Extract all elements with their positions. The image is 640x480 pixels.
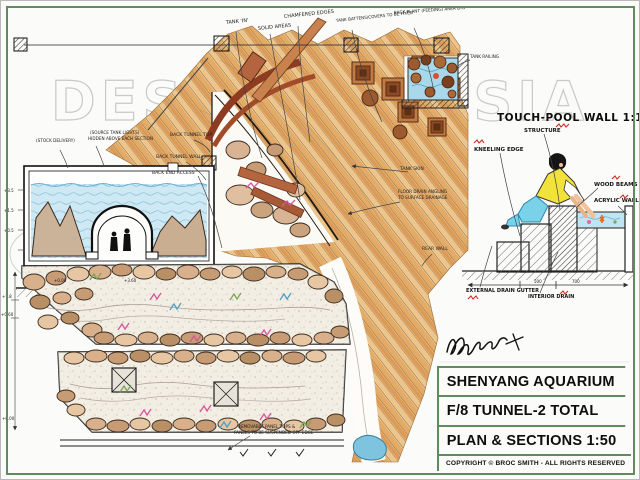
dim-p1: +1.8 [2, 294, 12, 299]
label-tank-railing: TANK RAILING [469, 54, 499, 59]
label-tank-lights-1: (SOURCE TANK LIGHTS) [90, 130, 140, 135]
touch-pool-plan [402, 54, 468, 108]
project-title: SHENYANG AQUARIUM [439, 366, 625, 395]
label-kneeling-edge: KNEELING EDGE [474, 147, 524, 153]
touch-pool-title: TOUCH-POOL WALL 1:10 [497, 112, 640, 124]
label-wood-beams: WOOD BEAMS [594, 182, 638, 188]
starfish-mark [433, 73, 439, 79]
dim-700: 700 [572, 279, 580, 284]
label-back-tunnel-top: BACK TUNNEL TOP [170, 132, 212, 138]
aquarium-drawing-sheet: { "page": { "watermark": "DESIGNED ASIA"… [0, 0, 640, 480]
copyright-line: COPYRIGHT © BROC SMITH - ALL RIGHTS RESE… [439, 454, 631, 471]
label-removable-1: REMOVABLE PANEL TOPS & [238, 424, 296, 429]
label-chamfered-edges: CHAMFERED EDGES [284, 9, 335, 20]
title-block: SHENYANG AQUARIUM F/8 TUNNEL-2 TOTAL PLA… [437, 366, 631, 471]
label-tank-lights-2: HIDDEN ABOVE EACH SECTION [88, 136, 153, 141]
drawing-scale: PLAN & SECTIONS 1:50 [439, 425, 625, 454]
label-interior-drain: INTERIOR DRAIN [528, 294, 574, 300]
dim-e4: +0.00 [54, 278, 67, 283]
dim-500: 500 [534, 279, 542, 284]
tunnel-arch [92, 206, 152, 258]
dim-p3: +0.00 [2, 416, 15, 421]
touch-pool-detail: TOUCH-POOL WALL 1:10 [462, 112, 640, 300]
drawing-number: F/8 TUNNEL-2 TOTAL [439, 395, 625, 424]
label-removable-2: PANELS TO BE SUSPENDED OFF EDGE [234, 430, 314, 435]
label-solid-areas: SOLID AREAS [258, 23, 292, 32]
dim-e3: +0.5 [4, 228, 14, 233]
label-structure: STRUCTURE [524, 128, 561, 134]
label-floor-drain-2: TO SURFACE DRAINAGE [397, 195, 448, 200]
label-back-end-access: BACK END ACCESS [152, 170, 195, 176]
label-tank-in: TANK 'IN' [225, 18, 249, 26]
dim-p2: +0.60 [1, 312, 14, 317]
label-rear-wall: REAR WALL [422, 246, 448, 252]
dim-e1: +3.5 [4, 188, 14, 193]
label-floor-drain-1: FLOOR DRAIN ANGLING [398, 189, 447, 194]
label-acrylic-wall: ACRYLIC WALL [594, 198, 639, 204]
label-tank-skin: TANK SKIN [399, 166, 424, 172]
label-stock-delivery: (STOCK DELIVERY) [36, 138, 75, 143]
label-back-plant: BACK PLANT (FEEDING) AREA BYD [394, 5, 466, 15]
dim-e5: +3.60 [124, 278, 137, 283]
signature [440, 334, 630, 362]
label-back-tunnel-wall: BACK TUNNEL WALL [156, 154, 202, 160]
dim-e2: +1.5 [4, 208, 14, 213]
